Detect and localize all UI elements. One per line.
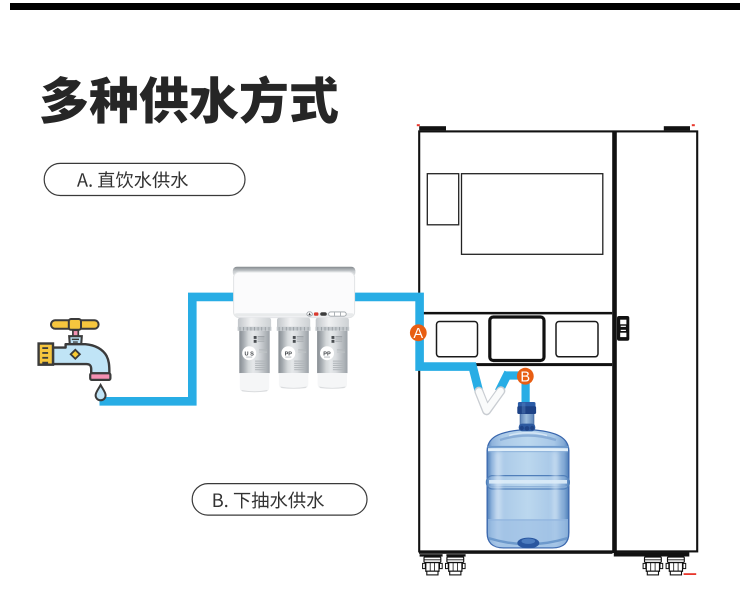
svg-text:B: B	[520, 370, 530, 386]
svg-text:A: A	[413, 326, 423, 342]
svg-text:PP: PP	[285, 351, 293, 357]
svg-text:U S: U S	[245, 351, 255, 357]
svg-text:PP: PP	[323, 351, 331, 357]
